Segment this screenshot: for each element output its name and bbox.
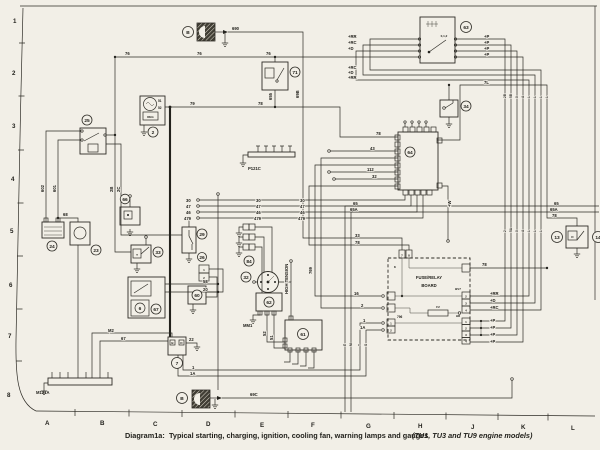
wire-label: 769 xyxy=(308,266,313,274)
wire-label: M2 xyxy=(108,328,114,333)
connector-p121c: P121C xyxy=(248,152,295,171)
caption: Diagram1a: Typical starting, charging, i… xyxy=(125,431,533,440)
grid-row: 6 xyxy=(9,282,13,289)
caption-label: Diagram1a: xyxy=(125,431,165,440)
wiring-diagram: 1 2 3 4 5 6 7 8 A B C D E F G H J K L xyxy=(0,0,600,450)
wire-label: 479 xyxy=(298,216,306,221)
starter-relay-67: 6 67 xyxy=(128,277,165,318)
wire-label: 30 xyxy=(186,198,191,203)
wire-label: +RR xyxy=(490,291,499,296)
hr-pin: 4 xyxy=(465,340,467,344)
wire-label: 2B xyxy=(109,187,114,192)
pin-d: D xyxy=(180,341,183,345)
wire-label: 2C xyxy=(116,187,121,192)
pin-1: 1 xyxy=(203,268,205,272)
wire-label: 1A xyxy=(360,325,365,330)
callout-63: 63 xyxy=(463,25,469,31)
grid-row: 3 xyxy=(12,123,16,130)
bundle-label: M xyxy=(349,343,353,346)
switch-34: 34 xyxy=(440,100,471,117)
grid-row: 2 xyxy=(12,70,16,77)
starter-motor-23: 23 xyxy=(70,222,101,255)
scanned-wiring-diagram-page: 1 2 3 4 5 6 7 8 A B C D E F G H J K L xyxy=(0,0,600,450)
wire-label: 78 xyxy=(258,101,263,106)
wire-label: 65A xyxy=(550,207,558,212)
board-title-2: BOARD xyxy=(421,283,436,288)
wire-label: 78 xyxy=(552,213,557,218)
wire-label: 1 xyxy=(363,318,366,323)
component-66: 66 xyxy=(120,194,140,225)
regulator-label: REG xyxy=(147,115,154,119)
grid-col: D xyxy=(206,421,211,428)
bundle-label: L xyxy=(527,96,531,98)
switch-29: 29 xyxy=(182,227,207,253)
bundle-label: L xyxy=(539,230,543,232)
wire-label: 69C xyxy=(250,392,258,397)
wire-label: +P xyxy=(490,318,495,323)
callout-2: 2 xyxy=(152,130,155,136)
wire-label: 601 xyxy=(52,184,57,192)
callout-14: 14 xyxy=(595,235,600,241)
wire-label: +RC xyxy=(348,40,357,45)
callout-62: 62 xyxy=(266,300,272,306)
grid-col: B xyxy=(100,420,105,427)
bundle-label: E xyxy=(343,344,347,346)
bundle-label: 0 xyxy=(515,230,519,232)
wire-label: 65A xyxy=(350,207,358,212)
grid-col: C xyxy=(153,421,158,428)
wire-label-51: 51 xyxy=(158,99,162,103)
wire-label: +P xyxy=(490,332,495,337)
pin-b: B xyxy=(171,341,174,345)
distributor-32: 32 xyxy=(241,272,279,293)
hr-label: HR xyxy=(456,314,461,318)
wire-label: 58 xyxy=(203,279,208,284)
callout-33: 33 xyxy=(155,250,161,256)
wire-label: 7L xyxy=(484,80,489,85)
callout-b: B xyxy=(186,30,190,36)
bundle-label: 5A xyxy=(509,227,513,232)
callout-34: 34 xyxy=(463,104,469,110)
grid-col: K xyxy=(521,424,526,431)
switch-33: T 33 xyxy=(131,245,163,263)
wire-label: +RR xyxy=(348,75,357,80)
board-top-pin-8: 8 xyxy=(408,254,410,258)
wire-label: 33 xyxy=(355,233,360,238)
wire-label: 2 xyxy=(361,303,364,308)
switch-13: D 13 xyxy=(552,226,589,248)
wiring xyxy=(44,32,599,412)
callout-26: 26 xyxy=(199,255,205,261)
wire-label: 20 xyxy=(203,287,208,292)
wire-label: 78 xyxy=(376,131,381,136)
caption-text: Typical starting, charging, ignition, co… xyxy=(169,431,428,440)
wire-label: +P xyxy=(484,34,489,39)
grid-col: L xyxy=(571,425,575,432)
board-k: K xyxy=(394,265,397,269)
battery-24: 24 xyxy=(42,218,64,251)
wire-label: +P xyxy=(484,52,489,57)
wire-label: +D xyxy=(348,46,353,51)
wire-label: 47 xyxy=(300,204,305,209)
instrument-cluster-64: 64 xyxy=(395,121,442,195)
arrow-icon xyxy=(217,396,222,400)
hr-pin: 3 xyxy=(465,333,467,337)
callout-71: 71 xyxy=(292,70,298,76)
callout-67: 67 xyxy=(153,307,159,313)
ignition-switch-63: 0,1,2 63 xyxy=(418,17,471,63)
wire-label: 46 xyxy=(256,210,261,215)
bv7-pin: 3 xyxy=(465,302,467,306)
wire-label: 602 xyxy=(40,184,45,192)
bundle-label: S xyxy=(364,344,368,346)
relay-25: 25 xyxy=(80,115,106,154)
wire-label: 690 xyxy=(232,26,240,31)
grid-col: G xyxy=(366,423,371,430)
earth-group-84: 84 xyxy=(239,224,255,266)
wire-label: 65 xyxy=(353,201,358,206)
wire-label: 52 xyxy=(262,331,267,336)
fuse-relay-board: FUSE/RELAY BOARD 7 8 K F2 2 3 4 BV7 1 2 … xyxy=(387,250,482,344)
pin-d: D xyxy=(571,235,574,239)
wire-label: 1A xyxy=(190,371,195,376)
callout-25: 25 xyxy=(84,118,90,124)
wire-label: 76 xyxy=(266,51,271,56)
bv7-pin: 4 xyxy=(465,309,467,313)
callout-29: 29 xyxy=(199,232,205,238)
grid-col: E xyxy=(260,422,264,429)
wire-label: +P xyxy=(484,40,489,45)
wire-label: 76 xyxy=(125,51,130,56)
page-frame xyxy=(16,6,597,421)
pin-796-1: 1 xyxy=(390,322,392,326)
pin-796-2: 2 xyxy=(390,329,392,333)
callout-66: 66 xyxy=(122,197,128,203)
wire-label: 32 xyxy=(372,174,377,179)
connector-26: 1 2 26 xyxy=(198,253,210,282)
board-title-1: FUSE/RELAY xyxy=(416,275,442,280)
callout-24: 24 xyxy=(49,244,55,250)
wire-label: 655 xyxy=(268,92,273,100)
wire-label: 112 xyxy=(367,167,374,172)
callout-84: 84 xyxy=(246,259,252,265)
wire-label: +P xyxy=(490,325,495,330)
wire-label: 479 xyxy=(254,216,262,221)
wire-label: 78 xyxy=(355,240,360,245)
bundle-label: L xyxy=(545,96,549,98)
wire-label: +D xyxy=(490,298,495,303)
earth-rail-m121a: M121A xyxy=(36,378,112,395)
callout-23: 23 xyxy=(93,248,99,254)
module-61: 61 xyxy=(283,316,322,352)
grid-col: J xyxy=(471,424,475,431)
wire-label: 46 xyxy=(300,210,305,215)
grid-row: 5 xyxy=(10,228,14,235)
grid-col: F xyxy=(311,422,315,429)
wire-label: 78 xyxy=(482,262,487,267)
callout-7: 7 xyxy=(176,361,179,367)
bundle-label: 5B xyxy=(509,93,513,98)
bundle-label: L xyxy=(533,230,537,232)
grid-row: 1 xyxy=(13,18,17,25)
callout-32: 32 xyxy=(243,275,249,281)
hr-pin: 2 xyxy=(465,327,467,331)
bundle-label: L xyxy=(527,230,531,232)
mm1-label: MM1 xyxy=(243,323,253,328)
wire-label: 51 xyxy=(269,335,274,340)
pin-label-t: T xyxy=(136,253,138,257)
callout-61: 61 xyxy=(300,332,306,338)
grid-row: 8 xyxy=(7,392,11,399)
wire-label: 46 xyxy=(186,210,191,215)
grid-row: 7 xyxy=(8,333,12,340)
bundle-label: 0 xyxy=(515,96,519,98)
bundle-label: T xyxy=(358,344,362,346)
bv7-label: BV7 xyxy=(455,287,461,291)
bundle-label: L xyxy=(539,96,543,98)
wire-label: +P xyxy=(490,339,495,344)
caption-models: (TU1, TU3 and TU9 engine models) xyxy=(412,431,533,440)
arrow-icon xyxy=(223,30,228,34)
wire-label: +W xyxy=(447,201,452,207)
connector-b-top: B xyxy=(183,23,229,41)
bundle-label: 2B xyxy=(503,93,507,98)
wire-label: 69B xyxy=(295,90,300,98)
callout-b: B xyxy=(180,396,184,402)
wire-label: 47 xyxy=(256,204,261,209)
wire-label: 65 xyxy=(554,201,559,206)
wire-label: 43 xyxy=(370,146,375,151)
connector-label: P121C xyxy=(248,166,261,171)
grid-row: 4 xyxy=(11,176,15,183)
wire-label: +RR xyxy=(348,34,357,39)
label-796: 796 xyxy=(397,315,403,319)
switch-71: 71 xyxy=(262,62,300,90)
callout-6: 6 xyxy=(139,306,142,312)
grid-col: H xyxy=(418,423,423,430)
wire-label: 479 xyxy=(184,216,192,221)
wire-label: 68 xyxy=(63,212,68,217)
bv7-pin: 2 xyxy=(465,295,467,299)
grid-col: A xyxy=(45,420,50,427)
grid-row-labels: 1 2 3 4 5 6 7 8 xyxy=(7,18,17,399)
callout-60: 60 xyxy=(194,293,200,299)
component-14: 14 xyxy=(593,232,600,243)
callout-13: 13 xyxy=(554,235,560,241)
wire-label: 30 xyxy=(256,198,261,203)
rail-label: M121A xyxy=(36,390,50,395)
wire-label: 47 xyxy=(186,204,191,209)
fuse-f2: F2 xyxy=(436,305,440,309)
board-top-pin-7: 7 xyxy=(401,254,403,258)
wire-label: +P xyxy=(484,46,489,51)
wire-label: 79 xyxy=(190,101,195,106)
wire-label-52: 52 xyxy=(158,106,162,110)
hr-pin: 1 xyxy=(465,320,467,324)
earth-points xyxy=(41,40,580,409)
wire-label: +RC xyxy=(490,305,499,310)
wire-label: 67 xyxy=(121,336,126,341)
ignition-positions: 0,1,2 xyxy=(441,34,448,38)
callout-64: 64 xyxy=(407,150,413,156)
wire-label: 76 xyxy=(197,51,202,56)
wire-label: 22 xyxy=(189,337,194,342)
wire-label: 1 xyxy=(192,365,195,370)
bundle-label: L xyxy=(533,96,537,98)
wire-label: 16 xyxy=(354,291,359,296)
bundle-label: 2 xyxy=(503,230,507,232)
high-tension-label: HIGH TENSION xyxy=(284,264,289,294)
wire-label: 30 xyxy=(300,198,305,203)
